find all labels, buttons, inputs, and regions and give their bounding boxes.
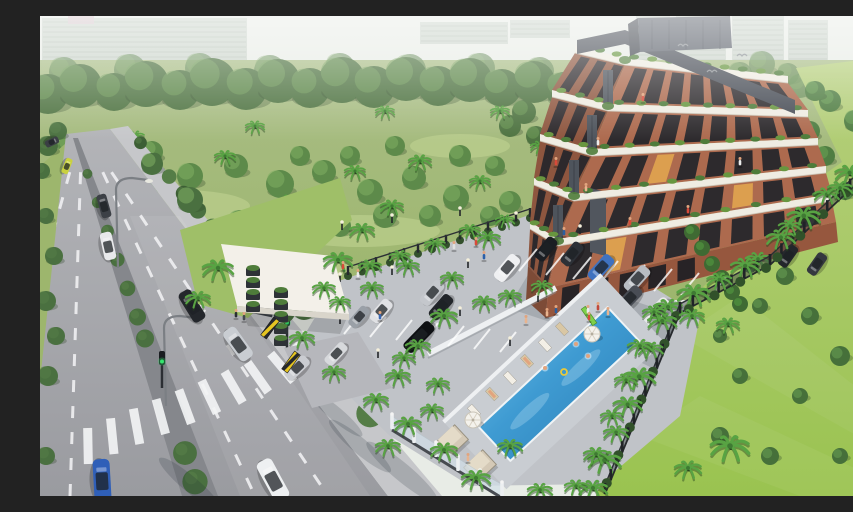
render-canvas <box>40 16 853 496</box>
palm-tree-icon <box>528 484 552 496</box>
atmospheric-haze <box>40 16 853 141</box>
architectural-render <box>40 16 853 496</box>
